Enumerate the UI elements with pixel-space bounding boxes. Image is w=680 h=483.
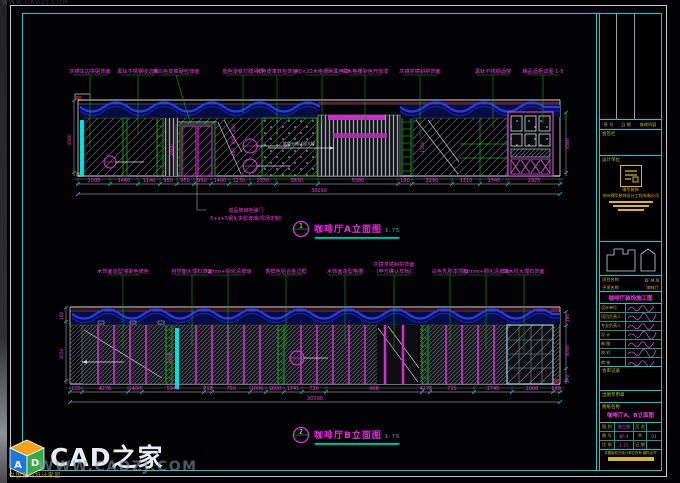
company-stamp-icon [620, 165, 642, 187]
dimension-label: 2350 [257, 178, 270, 184]
dimension-label: 950 [180, 178, 190, 184]
door-note-line1: 成品玻璃地弹门 [228, 207, 263, 214]
sheet-name-area: 图纸名称 咖啡厅A、B立面图 [600, 403, 661, 423]
dimension-label: 1310 [460, 178, 473, 184]
dimension-label: 1600 [269, 386, 282, 392]
sheet-name: 咖啡厅A、B立面图 [600, 411, 661, 419]
watermark-bottom: WWW.CADZJ.COM [38, 459, 198, 475]
dimension-label: 1230 [233, 178, 246, 184]
callout-label: 灰木纹大理石饰面 [503, 267, 545, 275]
dimension-label: 3290 [426, 178, 439, 184]
vertical-dimension: 1500 [420, 141, 426, 153]
dimension-label: 715 [447, 386, 457, 392]
signature-scribble [626, 313, 658, 321]
design-unit-area: 设计单位 锦华装饰 徐州锦华装饰设计工程有限公司 [600, 156, 661, 242]
overall-dimension: 30090 [311, 188, 327, 194]
revision-header: 序 号 日 期 修改内容 [600, 120, 661, 130]
dimension-label: 1545 [488, 178, 501, 184]
vertical-dimension: 370 [565, 375, 571, 384]
vertical-dimension: 600 [231, 148, 237, 157]
review-record-area: 会审记录 [600, 367, 661, 391]
vertical-dimension: 800 [231, 136, 237, 145]
svg-text:A: A [14, 460, 22, 471]
callout-label: 木饰面造型格栅 [327, 267, 363, 275]
callout-label: 实木格栅染色开放漆 [342, 67, 389, 75]
callout-label: 精品酒柜详图 1-5 [522, 67, 563, 75]
dimension-label: 4276 [99, 386, 112, 392]
signature-scribble [626, 340, 658, 348]
dimension-label: 1008 [526, 386, 539, 392]
cad-drawing-sheet: WWW.CADZJ.COM [0, 0, 680, 483]
callout-label: 灰镜茶镜斜拼饰面 [373, 260, 415, 268]
copyright-note: 本图版权归设计单位所有 翻印必究 [600, 450, 661, 466]
dimension-label: 5380 [352, 178, 365, 184]
vertical-dimension: 150 [231, 124, 237, 133]
vertical-dimension: 3050 [565, 345, 571, 357]
dimension-label: 2925 [528, 178, 541, 184]
callout-label: (甲方确认样板) [376, 267, 411, 275]
svg-text:2: 2 [299, 429, 303, 436]
callout-label: 木饰面造型墙染色修色 [97, 267, 149, 275]
drawing-title-text: 咖啡厅B立面图1:75 [314, 428, 400, 443]
tufted-inline-note: 软包分格详见大样 [283, 140, 315, 146]
signature-scribble [626, 349, 658, 357]
elevation-b: 木饰面造型墙染色修色 自然面大理石饰面 72mm+钢化清玻璃 香槟色铝合金边框 … [28, 258, 580, 408]
dimension-label: 190 [400, 178, 410, 184]
signature-scribble [626, 322, 658, 330]
callout-label: 灰镜茶镜斜拼饰面 [399, 67, 441, 75]
sign-off-area: 会签栏 [600, 130, 661, 156]
dimension-label: 4276 [420, 386, 433, 392]
sheet-number-table: 图 别 施工图 页 次 图 号 KF-4 共 04 比 例 1:75 日 期 [600, 423, 661, 450]
company-name: 徐州锦华装饰设计工程有限公司 [602, 193, 658, 199]
drawing-scale: 1:75 [385, 434, 400, 440]
dimension-label: 1140 [143, 178, 156, 184]
drawing-title-text: 咖啡厅A立面图1:75 [314, 222, 400, 237]
signature-scribble [626, 359, 658, 367]
title-block-inner: 序 号 日 期 修改内容 会签栏 设计单位 锦华装饰 徐州锦华装饰设计工程有限公… [599, 14, 661, 470]
building-outline-icon [601, 242, 661, 274]
callout-label: 米白色皮革硬包饰面 [153, 67, 200, 75]
elevation-b-panels [70, 321, 560, 389]
dimension-label: 1741 [287, 386, 300, 392]
revision-area [600, 14, 661, 120]
elevation-a: 软包分格详见大样 灰镜车边拼贴饰面 黑钛不锈钢收边条 米白色皮革硬包饰面 蓝色渐… [28, 52, 580, 224]
callout-label: 香槟色铝合金边框 [265, 267, 307, 275]
dimension-label: 1460 [118, 178, 131, 184]
dimension-label: 1006 [251, 386, 264, 392]
callout-label: 黑钛不锈钢酒架 [475, 67, 511, 75]
vertical-dimension: 2400 [167, 352, 173, 364]
vertical-dimension: 3580 [67, 134, 73, 146]
vertical-dimension: 3050 [59, 348, 65, 360]
yellow-bar [608, 457, 654, 461]
wine-cabinet [508, 112, 553, 176]
dimension-label: 1745 [487, 386, 500, 392]
project-info-rows: 项目名称KF·M.N 子项名称咖啡厅 [600, 276, 661, 292]
key-plan-sketch [600, 242, 661, 276]
dimension-label: 1480 [129, 386, 142, 392]
vertical-dimension: 3580 [565, 138, 571, 150]
site-caption: 中国室内设计家园 [9, 471, 61, 479]
callout-label: 米色皮革软包饰面 [256, 67, 298, 75]
project-title: 咖啡厅装饰施工图 [600, 292, 661, 304]
dimension-label: 908 [369, 386, 379, 392]
overall-dimension: 30090 [307, 396, 323, 402]
detail-bubble-icon: 2 [292, 426, 310, 444]
drawing-scale: 1:75 [385, 228, 400, 234]
dimension-label: 718 [203, 386, 213, 392]
svg-text:1: 1 [299, 223, 303, 230]
callout-label: 72mm+钢化清玻璃 [205, 267, 252, 275]
signature-table: 设计单位 项目负责人 专业负责人 设 计 制 图 校 对 审 核 [600, 304, 661, 367]
callout-label: 灰镜车边拼贴饰面 [69, 67, 111, 75]
dimension-label: 5945 [167, 386, 180, 392]
dimension-label: 950 [197, 178, 207, 184]
elevation-a-title: 1 咖啡厅A立面图1:75 [292, 220, 400, 238]
elevation-b-title: 2 咖啡厅B立面图1:75 [292, 426, 400, 444]
dimension-label: 115 [71, 386, 81, 392]
dimension-label: 1008 [88, 178, 101, 184]
elevation-b-wave-ceiling [72, 310, 560, 325]
stamp-caption: 锦华装饰 [600, 187, 661, 193]
dimension-label: 730 [309, 386, 319, 392]
signature-scribble [626, 331, 658, 339]
window-edge-strip [0, 0, 7, 483]
signature-scribble [626, 304, 658, 312]
dimension-label: 950 [163, 178, 173, 184]
dimension-label: 1400 [214, 178, 227, 184]
vertical-dimension: 180 [565, 314, 571, 323]
vertical-dimension: 2400 [169, 144, 175, 156]
title-block: 序 号 日 期 修改内容 会签栏 设计单位 锦华装饰 徐州锦华装饰设计工程有限公… [596, 13, 662, 471]
detail-bubble-icon: 1 [292, 220, 310, 238]
door-note-line2: 5+o+5钢化夹胶玻璃(现场定制) [210, 215, 282, 222]
issue-seal-area: 出图专用章 [600, 391, 661, 403]
dimension-label: 180 [551, 386, 561, 392]
dimension-label: 3830 [291, 178, 304, 184]
dimension-label: 750 [226, 386, 236, 392]
vertical-dimension: 160 [59, 312, 65, 321]
